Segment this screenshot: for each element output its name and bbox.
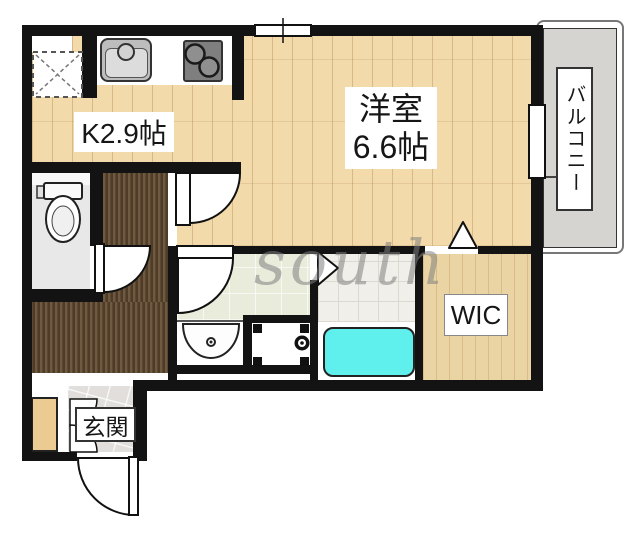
wall-toilet-bottom <box>30 289 103 302</box>
wall-washer-top <box>243 315 318 323</box>
washbasin-counter-divider <box>177 320 243 322</box>
wall-fridge-divider <box>82 36 97 98</box>
wall-left <box>22 25 32 461</box>
wall-right <box>531 25 543 391</box>
sink-basin <box>105 48 148 78</box>
entrance-door-leaf <box>129 457 138 515</box>
balcony-label-text: バルコニー <box>560 84 589 194</box>
stove-icon <box>183 40 223 82</box>
kitchen-label-text: K2.9帖 <box>81 112 167 152</box>
wall-toilet-right <box>90 162 103 246</box>
wic-label: WIC <box>444 294 508 336</box>
wall-entrance-bottom-right <box>135 452 147 461</box>
entrance-label-text: 玄関 <box>83 408 129 442</box>
wall-basin-bottom <box>168 365 318 374</box>
toilet-room-floor <box>32 173 90 289</box>
wall-entrance-bottom-left <box>22 452 77 461</box>
western-room-label-line1: 洋室 <box>359 90 423 128</box>
wall-niche <box>32 36 72 52</box>
balcony-label: バルコニー <box>556 67 593 211</box>
bathtub <box>323 327 415 377</box>
window-top <box>254 24 312 37</box>
hallway-carpet-lower <box>30 302 168 373</box>
watermark: south <box>254 226 448 299</box>
kitchen-label: K2.9帖 <box>74 112 174 152</box>
shoe-cabinet <box>31 397 58 452</box>
western-room-label: 洋室 6.6帖 <box>345 87 437 169</box>
hall-door-threshold <box>168 173 177 246</box>
wall-kitchen-bottom <box>22 162 241 173</box>
wall-mid-right <box>478 246 531 254</box>
wic-label-text: WIC <box>451 300 502 331</box>
window-balcony <box>528 104 546 179</box>
washbasin-counter <box>177 322 243 365</box>
western-room-label-line2: 6.6帖 <box>353 128 430 166</box>
wall-counter-end <box>232 25 244 100</box>
entrance-door-arc <box>78 458 135 515</box>
washing-machine-space <box>252 323 310 365</box>
floor-plan: K2.9帖 洋室 6.6帖 バルコニー WIC 玄関 south <box>0 0 640 542</box>
toilet-shelf <box>32 173 90 185</box>
wall-bottom <box>133 380 543 391</box>
hallway-carpet-upper <box>103 173 168 302</box>
wall-hall-washroom <box>168 246 177 380</box>
entrance-label: 玄関 <box>75 407 136 442</box>
